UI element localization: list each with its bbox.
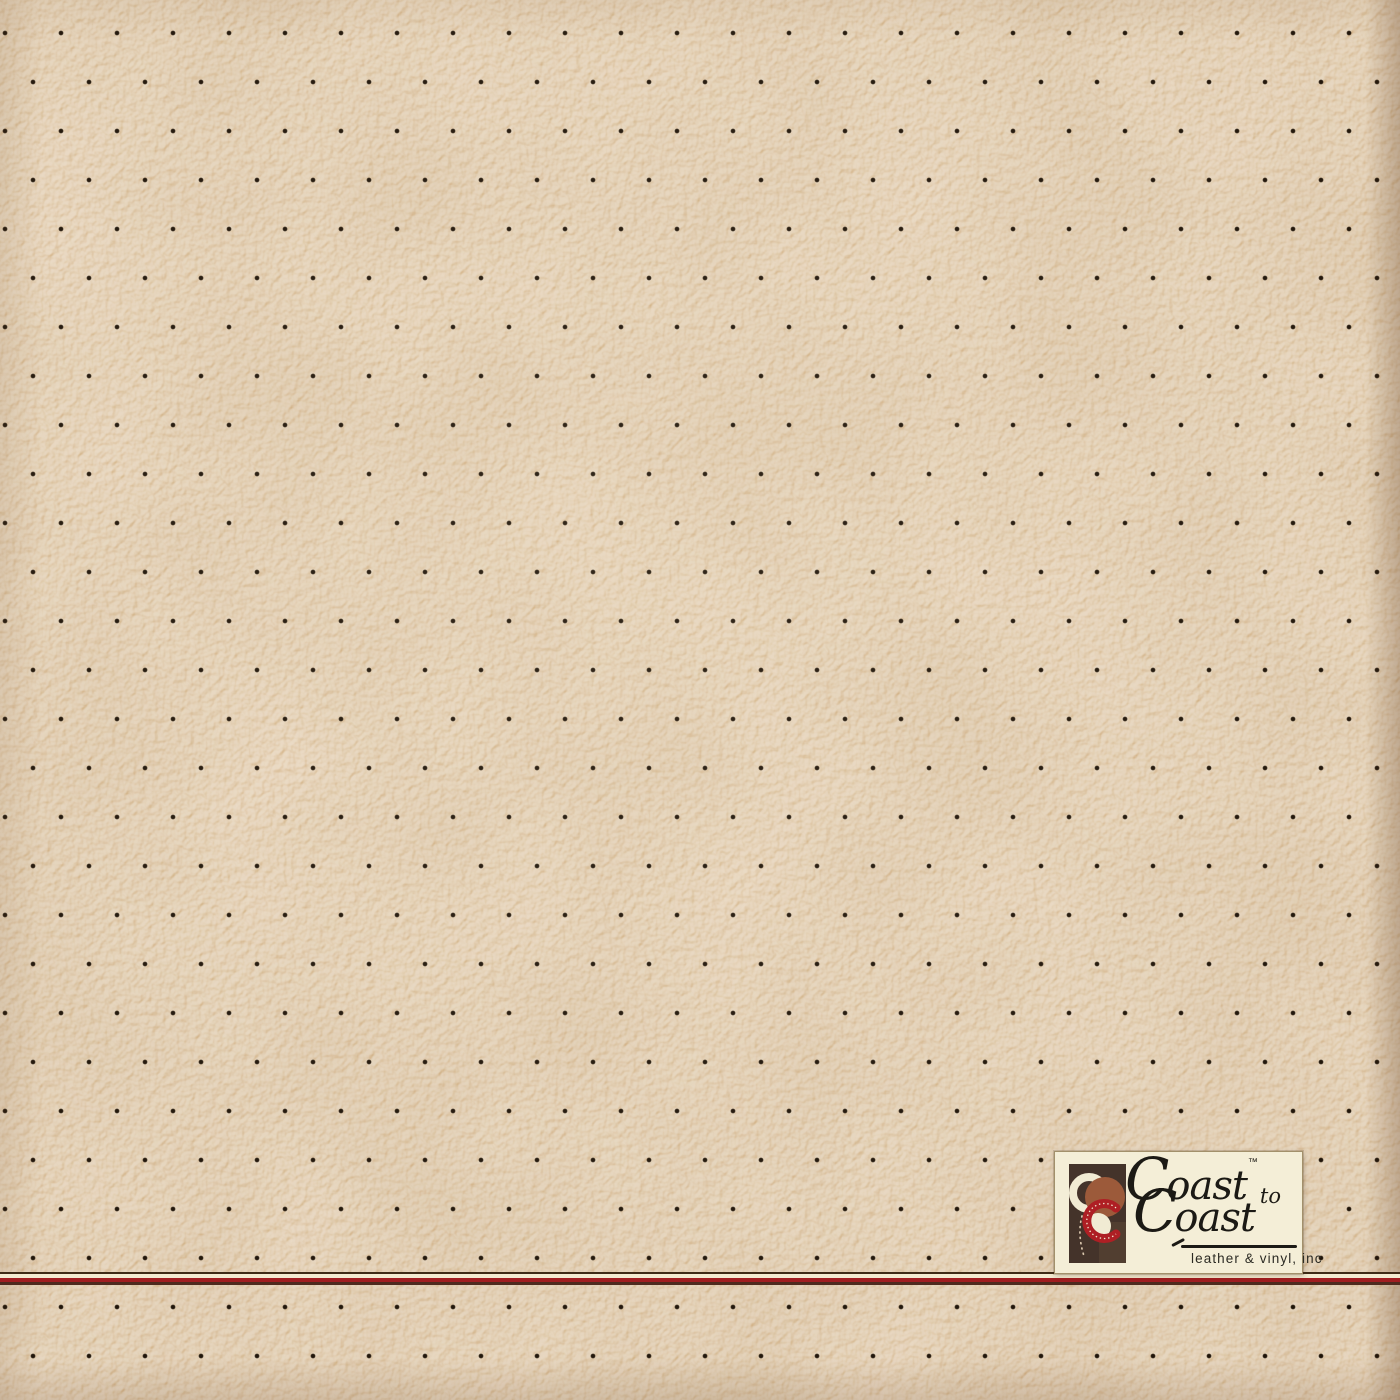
brand-connector: to — [1260, 1186, 1281, 1207]
brand-tagline: leather & vinyl, inc — [1191, 1251, 1323, 1266]
brand-word2-initial: C — [1133, 1177, 1174, 1245]
brand-badge: CoastCoast™to Coast leather & vinyl, inc — [1054, 1151, 1303, 1274]
trademark-symbol: ™ — [1248, 1158, 1258, 1168]
stripe-band-brown-bottom — [0, 1282, 1400, 1285]
tagline-rule — [1181, 1245, 1297, 1248]
brand-wordmark-line2: Coast — [1133, 1182, 1255, 1240]
leather-swatch-photo: CoastCoast™to Coast leather & vinyl, inc — [0, 0, 1400, 1400]
coast-to-coast-logo-icon — [1069, 1164, 1126, 1263]
brand-word2-rest: oast — [1174, 1195, 1255, 1241]
